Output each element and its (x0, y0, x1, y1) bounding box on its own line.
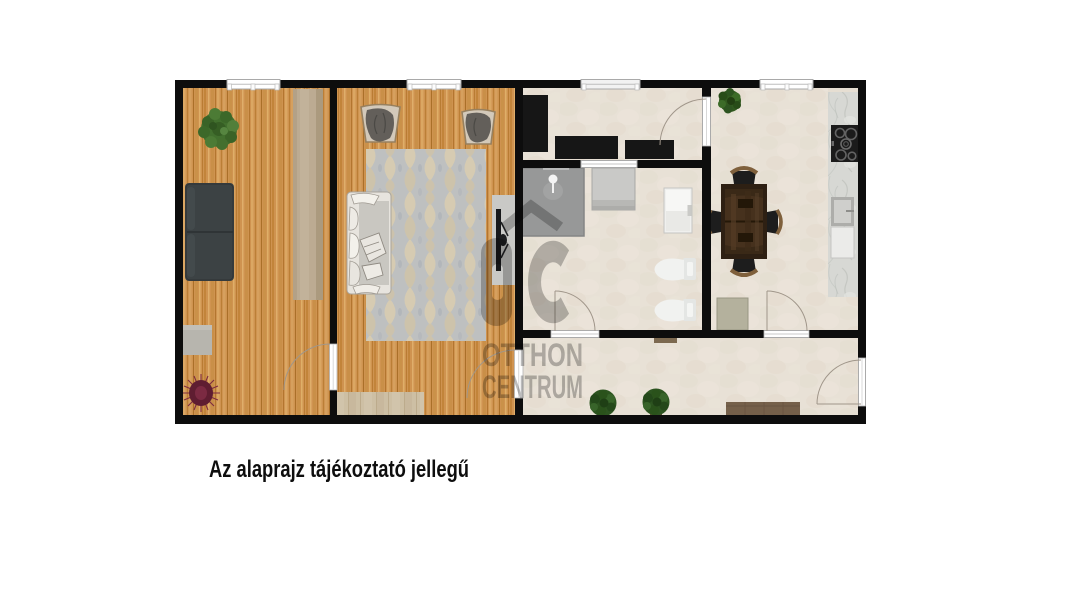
svg-text:Az alaprajz tájékoztató jelleg: Az alaprajz tájékoztató jellegű (209, 456, 469, 483)
svg-text:OTTHON: OTTHON (482, 337, 583, 373)
svg-text:CENTRUM: CENTRUM (482, 369, 583, 405)
